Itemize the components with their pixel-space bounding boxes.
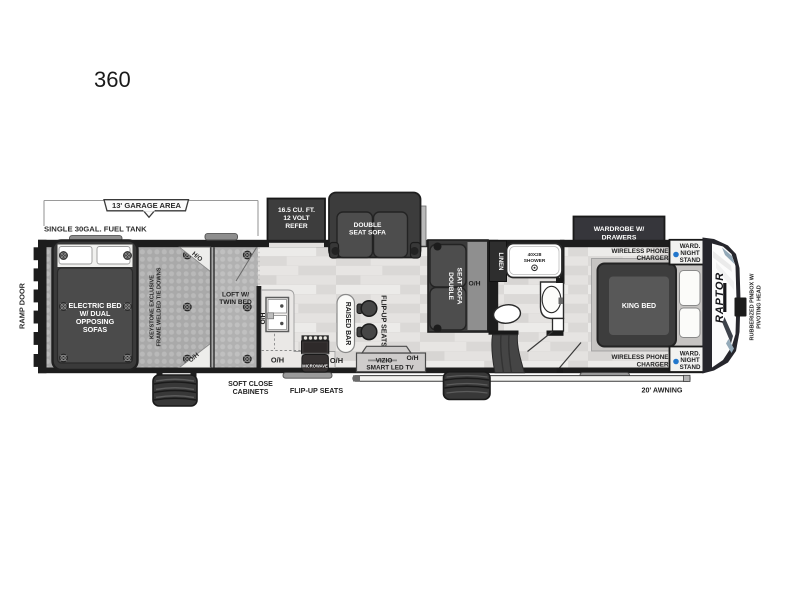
svg-text:O/H: O/H	[260, 312, 267, 324]
svg-text:STAND: STAND	[680, 364, 701, 371]
svg-text:O/H: O/H	[406, 355, 418, 362]
svg-text:SOFAS: SOFAS	[83, 325, 108, 334]
svg-text:360: 360	[94, 67, 131, 92]
svg-text:KEYSTONE EXCLUSIVE: KEYSTONE EXCLUSIVE	[150, 275, 156, 339]
svg-text:DOUBLE: DOUBLE	[447, 272, 454, 300]
svg-text:FLIP-UP SEATS: FLIP-UP SEATS	[290, 386, 343, 395]
svg-text:RUBBERIZED PINBOX W/: RUBBERIZED PINBOX W/	[750, 273, 756, 340]
svg-text:VIZIO: VIZIO	[376, 358, 393, 365]
svg-text:STAND: STAND	[680, 257, 701, 264]
svg-text:RAMP DOOR: RAMP DOOR	[18, 282, 27, 329]
svg-text:FLIP-UP SEATS: FLIP-UP SEATS	[380, 295, 387, 347]
svg-text:LINEN: LINEN	[497, 253, 503, 271]
svg-text:SEAT SOFA: SEAT SOFA	[349, 230, 386, 237]
svg-text:RAISED BAR: RAISED BAR	[344, 302, 351, 346]
svg-text:13' GARAGE AREA: 13' GARAGE AREA	[112, 201, 182, 210]
svg-text:KING BED: KING BED	[622, 303, 656, 310]
svg-text:DOUBLE: DOUBLE	[354, 222, 382, 229]
svg-text:WIRELESS PHONE: WIRELESS PHONE	[611, 354, 668, 361]
svg-text:SINGLE 30GAL. FUEL TANK: SINGLE 30GAL. FUEL TANK	[44, 225, 147, 234]
svg-text:CABINETS: CABINETS	[233, 389, 269, 396]
svg-text:40X28: 40X28	[528, 252, 542, 258]
svg-text:12 VOLT: 12 VOLT	[283, 215, 309, 222]
svg-text:FRAME WELDED TIE DOWNS: FRAME WELDED TIE DOWNS	[157, 267, 163, 346]
svg-text:20' AWNING: 20' AWNING	[642, 386, 683, 395]
svg-text:TWIN BED: TWIN BED	[219, 299, 252, 306]
svg-text:SHOWER: SHOWER	[524, 258, 546, 264]
svg-text:SMART LED TV: SMART LED TV	[366, 365, 414, 372]
svg-text:WARDROBE W/: WARDROBE W/	[594, 226, 645, 233]
svg-text:MICROWAVE: MICROWAVE	[302, 363, 328, 368]
svg-text:O/H: O/H	[468, 281, 480, 288]
svg-text:REFER: REFER	[285, 223, 308, 230]
svg-text:LOFT W/: LOFT W/	[222, 292, 249, 299]
svg-text:PIVOTING HEAD: PIVOTING HEAD	[757, 285, 763, 328]
svg-text:CHARGER: CHARGER	[637, 361, 669, 368]
svg-text:WIRELESS PHONE: WIRELESS PHONE	[611, 248, 668, 255]
svg-text:SOFT CLOSE: SOFT CLOSE	[228, 381, 273, 388]
svg-text:16.5 CU. FT.: 16.5 CU. FT.	[278, 207, 315, 214]
svg-text:O/H: O/H	[271, 356, 284, 365]
svg-text:O/H: O/H	[330, 356, 343, 365]
svg-text:CHARGER: CHARGER	[637, 255, 669, 262]
svg-text:SEAT SOFA: SEAT SOFA	[456, 268, 463, 305]
